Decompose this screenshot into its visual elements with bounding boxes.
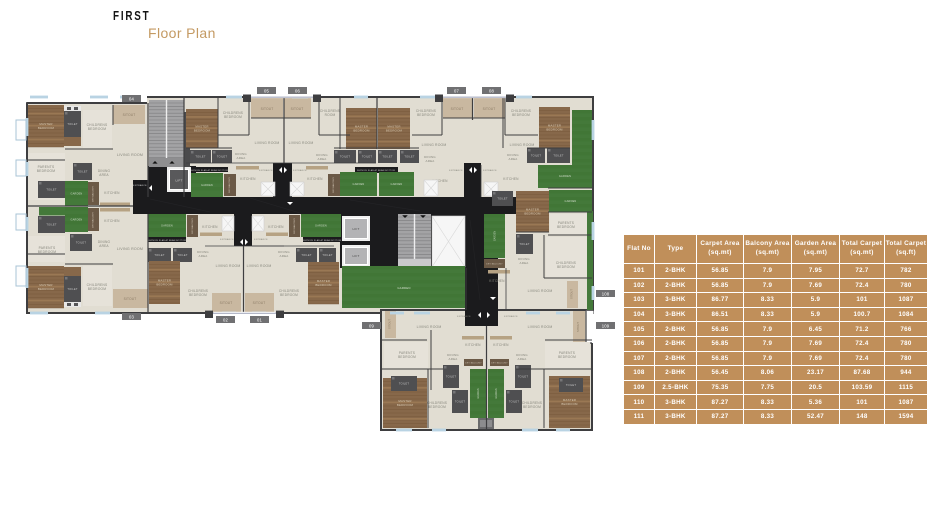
svg-text:LIFT: LIFT <box>353 227 360 231</box>
svg-text:GARDEN: GARDEN <box>161 225 173 228</box>
svg-text:TOILET: TOILET <box>67 122 77 126</box>
svg-text:KITCHEN: KITCHEN <box>104 219 120 223</box>
svg-text:TOILET: TOILET <box>553 154 563 158</box>
svg-text:TOILET: TOILET <box>497 197 507 201</box>
svg-text:SERVICE SLAB AT BEAM BOTTOM: SERVICE SLAB AT BEAM BOTTOM <box>190 169 228 172</box>
svg-text:ENTRANCE: ENTRANCE <box>254 238 268 241</box>
svg-text:BEDROOM: BEDROOM <box>37 169 55 173</box>
svg-text:BEDROOM: BEDROOM <box>38 126 55 130</box>
svg-text:DRY BALCONY: DRY BALCONY <box>465 362 482 365</box>
svg-text:BEDROOM: BEDROOM <box>512 113 530 117</box>
svg-text:TOILET: TOILET <box>446 375 456 379</box>
svg-text:TOILET: TOILET <box>566 383 576 387</box>
svg-text:BEDROOM: BEDROOM <box>557 265 575 269</box>
svg-text:GARDEN: GARDEN <box>494 231 497 242</box>
svg-text:SITOUT: SITOUT <box>570 289 574 299</box>
svg-text:ENTRANCE: ENTRANCE <box>457 315 471 318</box>
svg-text:TOILET: TOILET <box>154 253 164 257</box>
svg-text:TOILET: TOILET <box>518 375 528 379</box>
svg-text:LIVING ROOM: LIVING ROOM <box>528 325 553 329</box>
svg-text:ENTRANCE: ENTRANCE <box>449 169 463 172</box>
svg-text:AREA: AREA <box>199 254 208 258</box>
svg-text:ENTRANCE: ENTRANCE <box>483 169 497 172</box>
svg-text:TOILET: TOILET <box>340 155 350 159</box>
svg-text:08: 08 <box>489 88 495 93</box>
svg-text:AREA: AREA <box>318 157 327 161</box>
svg-text:BEDROOM: BEDROOM <box>558 355 576 359</box>
svg-text:TOILET: TOILET <box>455 400 465 404</box>
svg-text:109: 109 <box>602 323 610 328</box>
svg-text:LIVING ROOM: LIVING ROOM <box>117 153 143 157</box>
svg-text:AREA: AREA <box>520 261 529 265</box>
svg-text:03: 03 <box>129 314 135 319</box>
svg-text:KITCHEN: KITCHEN <box>104 191 120 195</box>
svg-text:SITOUT: SITOUT <box>261 107 274 111</box>
svg-text:KITCHEN: KITCHEN <box>307 177 323 181</box>
svg-text:TOILET: TOILET <box>46 188 56 192</box>
svg-text:LIVING ROOM: LIVING ROOM <box>528 289 553 293</box>
svg-text:BEDROOM: BEDROOM <box>397 403 414 407</box>
svg-text:LIVING ROOM: LIVING ROOM <box>417 325 442 329</box>
svg-text:09: 09 <box>369 323 375 328</box>
svg-text:SITOUT: SITOUT <box>388 319 392 329</box>
svg-text:AREA: AREA <box>99 244 109 248</box>
svg-text:BEDROOM: BEDROOM <box>38 250 56 254</box>
svg-text:GARDEN: GARDEN <box>201 184 213 187</box>
svg-text:BEDROOM: BEDROOM <box>88 127 106 131</box>
svg-text:SITOUT: SITOUT <box>291 107 304 111</box>
svg-text:DRY BALCONY: DRY BALCONY <box>92 186 95 202</box>
svg-text:GARDEN: GARDEN <box>353 183 365 186</box>
svg-text:ENTRANCE: ENTRANCE <box>259 169 273 172</box>
svg-text:04: 04 <box>129 96 135 101</box>
svg-text:TOILET: TOILET <box>509 400 519 404</box>
svg-text:SITOUT: SITOUT <box>451 107 464 111</box>
svg-text:LIFT: LIFT <box>176 179 183 183</box>
svg-text:DRY BALCONY: DRY BALCONY <box>293 218 296 234</box>
svg-text:AREA: AREA <box>426 159 435 163</box>
svg-text:TOILET: TOILET <box>46 223 56 227</box>
svg-text:07: 07 <box>454 88 460 93</box>
svg-text:BEDROOM: BEDROOM <box>557 225 575 229</box>
svg-text:ROOM: ROOM <box>325 113 336 117</box>
svg-text:DRY BALCONY: DRY BALCONY <box>332 177 335 193</box>
svg-text:AREA: AREA <box>99 173 109 177</box>
svg-text:ENTRANCE: ENTRANCE <box>504 315 518 318</box>
svg-text:BEDROOM: BEDROOM <box>386 129 403 133</box>
svg-text:TOILET: TOILET <box>404 155 414 159</box>
svg-text:TOILET: TOILET <box>67 287 77 291</box>
svg-text:DRY BALCONY: DRY BALCONY <box>92 212 95 228</box>
svg-text:ENTRANCE: ENTRANCE <box>220 238 234 241</box>
svg-text:LIVING ROOM: LIVING ROOM <box>422 143 447 147</box>
svg-text:KITCHEN: KITCHEN <box>489 279 505 283</box>
svg-text:DRY BALCONY: DRY BALCONY <box>486 263 503 266</box>
svg-text:BEDROOM: BEDROOM <box>189 293 207 297</box>
svg-text:TOILET: TOILET <box>531 154 541 158</box>
svg-text:TOILET: TOILET <box>217 155 227 159</box>
svg-text:BEDROOM: BEDROOM <box>156 283 173 287</box>
svg-text:05: 05 <box>264 88 270 93</box>
svg-text:AREA: AREA <box>449 357 458 361</box>
svg-text:GARDEN: GARDEN <box>315 225 327 228</box>
svg-text:TOILET: TOILET <box>177 253 187 257</box>
svg-text:108: 108 <box>602 291 610 296</box>
svg-text:KITCHEN: KITCHEN <box>240 177 256 181</box>
svg-text:SITOUT: SITOUT <box>220 301 233 305</box>
svg-text:BEDROOM: BEDROOM <box>523 405 541 409</box>
svg-text:TOILET: TOILET <box>519 242 529 246</box>
svg-text:BEDROOM: BEDROOM <box>88 287 106 291</box>
svg-text:LIVING ROOM: LIVING ROOM <box>247 264 272 268</box>
svg-text:BEDROOM: BEDROOM <box>224 115 242 119</box>
svg-text:LIFT: LIFT <box>353 254 360 258</box>
svg-text:TOILET: TOILET <box>322 253 332 257</box>
svg-text:02: 02 <box>223 317 229 322</box>
svg-text:KITCHEN: KITCHEN <box>465 343 481 347</box>
svg-text:TOILET: TOILET <box>399 382 409 386</box>
svg-text:AREA: AREA <box>237 156 246 160</box>
svg-text:GARDEN: GARDEN <box>397 286 410 290</box>
svg-text:ENTRANCE: ENTRANCE <box>293 169 307 172</box>
svg-text:SITOUT: SITOUT <box>124 297 137 301</box>
svg-text:DRY BALCONY: DRY BALCONY <box>228 177 231 193</box>
svg-text:DRY BALCONY: DRY BALCONY <box>491 362 508 365</box>
svg-text:LIVING ROOM: LIVING ROOM <box>216 264 241 268</box>
svg-text:BEDROOM: BEDROOM <box>398 355 416 359</box>
svg-text:TOILET: TOILET <box>76 241 86 245</box>
svg-text:GARDEN: GARDEN <box>565 200 577 203</box>
svg-text:AREA: AREA <box>518 357 527 361</box>
svg-text:DRY BALCONY: DRY BALCONY <box>191 218 194 234</box>
svg-text:BEDROOM: BEDROOM <box>38 287 55 291</box>
svg-text:BEDROOM: BEDROOM <box>428 405 446 409</box>
svg-text:BEDROOM: BEDROOM <box>280 293 298 297</box>
svg-text:GARDEN: GARDEN <box>71 219 83 222</box>
svg-text:GARDEN: GARDEN <box>495 388 498 399</box>
svg-text:01: 01 <box>257 317 263 322</box>
svg-text:KITCHEN: KITCHEN <box>493 343 509 347</box>
svg-text:BEDROOM: BEDROOM <box>417 113 435 117</box>
svg-text:KITCHEN: KITCHEN <box>503 177 519 181</box>
svg-text:LIVING ROOM: LIVING ROOM <box>289 141 314 145</box>
svg-text:BEDROOM: BEDROOM <box>194 129 211 133</box>
svg-text:LIVING ROOM: LIVING ROOM <box>255 141 280 145</box>
svg-text:BEDROOM: BEDROOM <box>546 128 563 132</box>
svg-text:AREA: AREA <box>280 254 289 258</box>
svg-text:KITCHEN: KITCHEN <box>268 225 284 229</box>
svg-text:GARDEN: GARDEN <box>477 388 480 399</box>
svg-text:KITCHEN: KITCHEN <box>202 225 218 229</box>
svg-text:SITOUT: SITOUT <box>576 322 580 332</box>
svg-text:TOILET: TOILET <box>301 253 311 257</box>
svg-text:AREA: AREA <box>509 157 518 161</box>
svg-text:LIVING ROOM: LIVING ROOM <box>510 143 535 147</box>
svg-text:LIVING ROOM: LIVING ROOM <box>117 247 143 251</box>
svg-text:GARDEN: GARDEN <box>391 183 403 186</box>
svg-text:SITOUT: SITOUT <box>253 301 266 305</box>
svg-text:GARDEN: GARDEN <box>71 193 83 196</box>
svg-text:SERVICE SLAB AT BEAM BOTTOM: SERVICE SLAB AT BEAM BOTTOM <box>303 239 341 242</box>
svg-text:SERVICE SLAB AT BEAM BOTTOM: SERVICE SLAB AT BEAM BOTTOM <box>357 169 395 172</box>
svg-text:TOILET: TOILET <box>362 155 372 159</box>
svg-text:TOILET: TOILET <box>77 170 87 174</box>
svg-text:GARDEN: GARDEN <box>559 174 571 178</box>
svg-text:BEDROOM: BEDROOM <box>561 402 578 406</box>
svg-text:BEDROOM: BEDROOM <box>524 212 541 216</box>
svg-text:SITOUT: SITOUT <box>483 107 496 111</box>
svg-text:SERVICE SLAB AT BEAM BOTTOM: SERVICE SLAB AT BEAM BOTTOM <box>148 239 186 242</box>
svg-text:TOILET: TOILET <box>382 155 392 159</box>
svg-text:BEDROOM: BEDROOM <box>353 129 370 133</box>
svg-text:SITOUT: SITOUT <box>123 113 136 117</box>
svg-text:ENTRANCE: ENTRANCE <box>133 184 147 187</box>
svg-text:BEDROOM: BEDROOM <box>315 283 332 287</box>
svg-text:06: 06 <box>295 88 301 93</box>
svg-text:TOILET: TOILET <box>195 155 205 159</box>
